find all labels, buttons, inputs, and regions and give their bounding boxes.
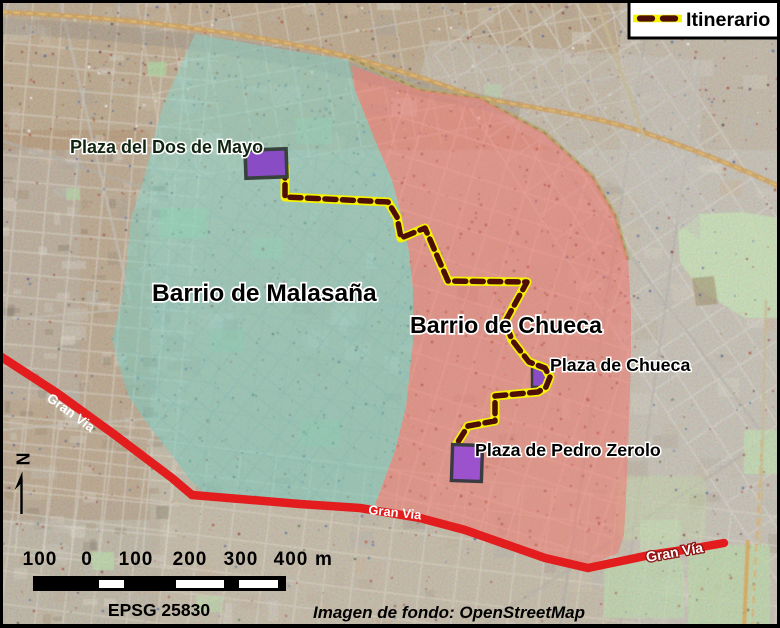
svg-text:Barrio de Chueca: Barrio de Chueca (410, 312, 603, 338)
svg-text:m: m (315, 549, 333, 570)
svg-text:200: 200 (173, 549, 208, 570)
svg-text:N: N (12, 453, 32, 466)
svg-text:Itinerario: Itinerario (686, 9, 770, 31)
svg-text:Barrio de Malasaña: Barrio de Malasaña (152, 280, 377, 307)
svg-text:100: 100 (23, 549, 58, 570)
svg-text:Plaza de Chueca: Plaza de Chueca (550, 355, 690, 375)
svg-text:400: 400 (274, 549, 309, 570)
svg-text:Plaza de Pedro Zerolo: Plaza de Pedro Zerolo (475, 440, 661, 460)
svg-text:100: 100 (119, 549, 154, 570)
svg-text:Imagen de fondo: OpenStreetMap: Imagen de fondo: OpenStreetMap (313, 603, 585, 622)
svg-text:Plaza del Dos de Mayo: Plaza del Dos de Mayo (70, 137, 263, 157)
svg-text:300: 300 (224, 549, 259, 570)
svg-text:0: 0 (81, 549, 93, 570)
svg-text:EPSG 25830: EPSG 25830 (108, 600, 210, 620)
